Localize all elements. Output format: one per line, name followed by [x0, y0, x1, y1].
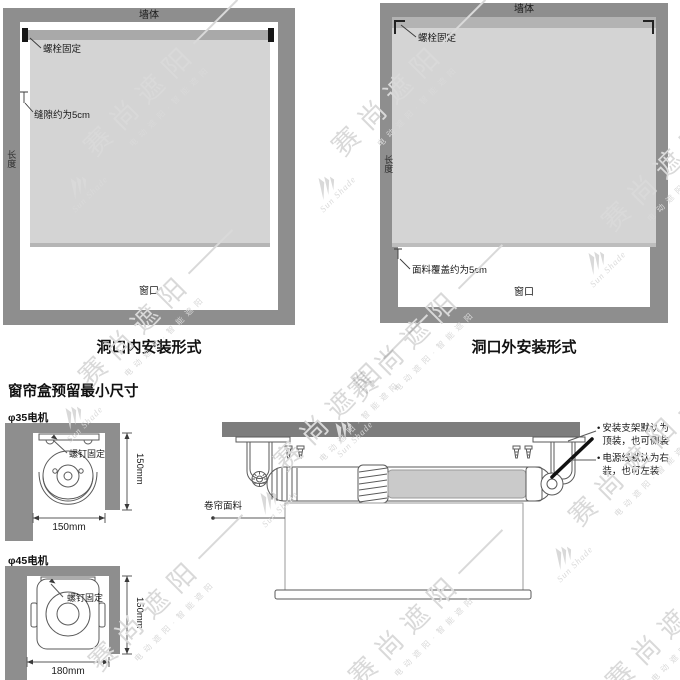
window-label: 窗口: [3, 286, 295, 299]
motor-45-figure: 螺钉固定 150mm 180mm: [5, 566, 155, 680]
outside-mount-diagram: 墙体 长度 螺栓固定 面料覆盖约为5cm 窗口: [380, 3, 668, 323]
length-label: 长度: [382, 155, 393, 173]
motor-35-name: φ35电机: [8, 410, 48, 425]
page-root: 墙体 长度 螺栓固定 缝隙约为5cm 窗口 洞口内安装形式 墙体 长度 螺栓固定…: [0, 0, 680, 680]
note-bullet: •: [597, 423, 600, 449]
wall-label: 墙体: [3, 10, 295, 23]
brand-logo-icon: Sun Shade: [302, 158, 358, 214]
motor-45-name: φ45电机: [8, 553, 48, 568]
height-dimension-label: 150mm: [133, 597, 145, 629]
window-label: 窗口: [380, 287, 668, 300]
width-dimension-label: 150mm: [33, 522, 105, 535]
motor-35-figure: 螺钉固定 150mm 150mm: [5, 423, 155, 541]
inside-mount-title: 洞口内安装形式: [3, 336, 295, 357]
note-power-cord: • 电源线默认为右装，也可左装: [597, 453, 670, 479]
screw-fix-label: 螺钉固定: [67, 593, 103, 604]
gap-label: 缝隙约为5cm: [34, 110, 90, 122]
bolt-fix-label: 螺栓固定: [43, 44, 81, 56]
height-dimension-label: 150mm: [133, 453, 145, 485]
note-bullet: •: [597, 453, 600, 479]
screw-fix-label: 螺钉固定: [69, 449, 105, 460]
bolt-fix-label: 螺栓固定: [418, 33, 456, 45]
brand-logo-script: Sun Shade: [318, 174, 358, 214]
roller-fabric-label: 卷帘面料: [204, 501, 242, 513]
outside-mount-title: 洞口外安装形式: [380, 336, 668, 357]
width-dimension-label: 180mm: [27, 666, 109, 679]
note-bracket-mount: • 安装支架默认为顶装，也可侧装: [597, 423, 670, 449]
fabric-cover-label: 面料覆盖约为5cm: [412, 265, 487, 277]
inside-mount-diagram: 墙体 长度 螺栓固定 缝隙约为5cm 窗口: [3, 8, 295, 325]
wall-label: 墙体: [380, 4, 668, 17]
curtain-box-title: 窗帘盒预留最小尺寸: [8, 380, 139, 401]
length-label: 长度: [5, 150, 16, 168]
